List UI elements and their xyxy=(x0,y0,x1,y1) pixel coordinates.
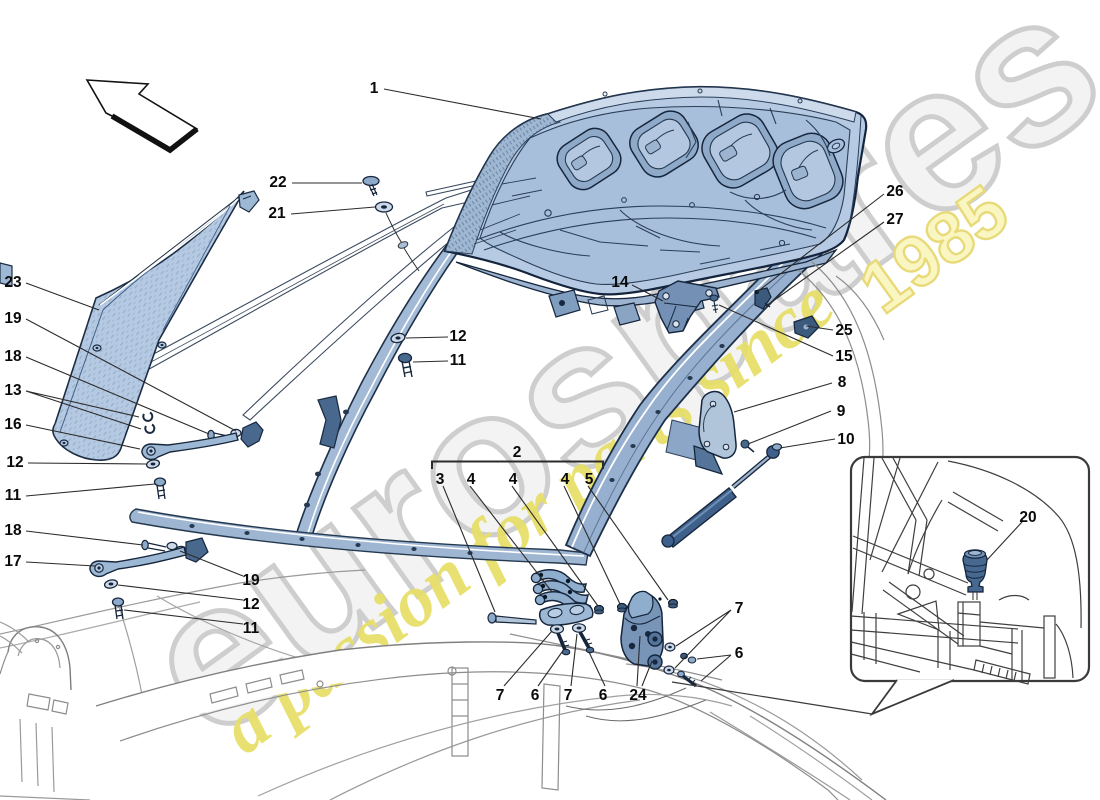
svg-text:18: 18 xyxy=(4,348,22,365)
svg-text:7: 7 xyxy=(735,600,744,617)
svg-text:23: 23 xyxy=(4,274,22,291)
svg-text:11: 11 xyxy=(243,620,260,637)
svg-text:19: 19 xyxy=(242,572,260,589)
svg-text:11: 11 xyxy=(450,352,467,369)
svg-text:10: 10 xyxy=(837,431,854,448)
svg-text:15: 15 xyxy=(835,348,853,365)
svg-text:12: 12 xyxy=(449,328,466,345)
svg-text:11: 11 xyxy=(5,487,22,504)
svg-text:26: 26 xyxy=(886,183,904,200)
svg-text:4: 4 xyxy=(509,471,518,488)
svg-text:8: 8 xyxy=(838,374,847,391)
svg-text:17: 17 xyxy=(4,553,21,570)
svg-text:18: 18 xyxy=(4,522,22,539)
svg-text:20: 20 xyxy=(1019,509,1036,526)
svg-text:22: 22 xyxy=(269,174,286,191)
svg-text:4: 4 xyxy=(561,471,570,488)
svg-text:21: 21 xyxy=(268,205,286,222)
svg-text:9: 9 xyxy=(837,403,846,420)
svg-text:25: 25 xyxy=(835,322,853,339)
svg-text:4: 4 xyxy=(467,471,476,488)
svg-text:5: 5 xyxy=(585,471,594,488)
svg-text:14: 14 xyxy=(611,274,629,291)
svg-text:12: 12 xyxy=(6,454,23,471)
svg-text:7: 7 xyxy=(496,687,505,704)
svg-text:2: 2 xyxy=(513,444,522,461)
svg-text:12: 12 xyxy=(242,596,259,613)
svg-text:16: 16 xyxy=(4,416,22,433)
svg-text:24: 24 xyxy=(629,687,647,704)
svg-text:6: 6 xyxy=(599,687,608,704)
svg-text:7: 7 xyxy=(564,687,573,704)
svg-text:3: 3 xyxy=(436,471,445,488)
svg-text:19: 19 xyxy=(4,310,22,327)
svg-text:6: 6 xyxy=(531,687,540,704)
svg-text:1: 1 xyxy=(370,80,379,97)
svg-text:27: 27 xyxy=(886,211,903,228)
svg-text:6: 6 xyxy=(735,645,744,662)
svg-text:13: 13 xyxy=(4,382,22,399)
